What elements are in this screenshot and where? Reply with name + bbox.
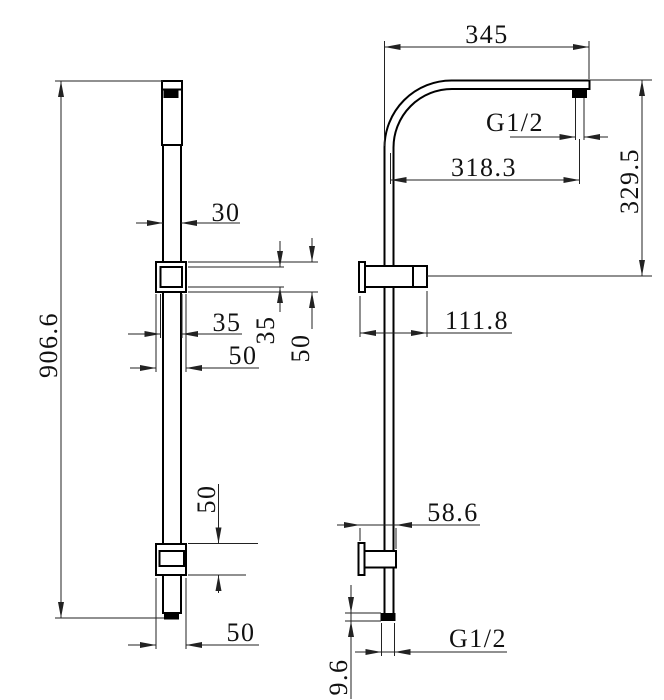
dim-label: 329.5 — [615, 148, 644, 214]
bracket-body — [365, 551, 397, 568]
dim-label: 345 — [465, 20, 509, 49]
dim-label: G1/2 — [486, 108, 544, 137]
dim-bottom-thread: G1/2 — [355, 623, 507, 656]
handle-seal-black — [164, 91, 179, 99]
dim-label: G1/2 — [449, 624, 507, 653]
dim-label: 111.8 — [445, 306, 509, 335]
lower-wall-bracket — [359, 543, 397, 575]
bracket-body — [365, 266, 427, 287]
dim-overall-height: 906.6 — [34, 81, 164, 618]
dim-label: 9.6 — [324, 659, 353, 696]
dim-inlet-cap-height: 9.6 — [324, 585, 381, 699]
dim-label: 906.6 — [34, 312, 63, 378]
rail-bottom-cap — [164, 613, 179, 620]
dim-horizontal-reach: 318.3 — [391, 139, 580, 184]
dim-label: 318.3 — [451, 153, 517, 182]
technical-drawing-canvas: 906.6 30 35 50 — [0, 0, 664, 700]
dim-upper-bracket-length: 111.8 — [360, 291, 512, 337]
dim-label: 50 — [192, 485, 221, 514]
right-view-shower-column: 345 G1/2 318.3 329.5 111.8 — [324, 20, 652, 699]
dim-label: 35 — [251, 316, 280, 345]
dim-label: 30 — [212, 198, 241, 227]
dim-label: 35 — [213, 308, 242, 337]
dim-lower-bracket-width: 50 — [128, 578, 259, 649]
upper-slider-inner — [161, 267, 183, 287]
arm-end-connector-black — [572, 90, 587, 99]
rail-tube — [163, 145, 181, 613]
dim-label: 50 — [286, 334, 315, 363]
lower-bracket-inner — [160, 551, 185, 566]
dim-label: 50 — [227, 618, 256, 647]
inlet-cap-black — [381, 613, 396, 621]
dim-top-thread: G1/2 — [486, 108, 608, 137]
dim-lower-bracket-height: 50 — [188, 484, 258, 593]
left-view-slide-rail: 906.6 30 35 50 — [34, 81, 318, 649]
dim-label: 58.6 — [427, 498, 479, 527]
dim-slider-inner-width: 35 — [128, 294, 242, 338]
dim-lower-bracket-length: 58.6 — [337, 498, 480, 549]
upper-wall-bracket — [359, 262, 427, 292]
dim-rail-width: 30 — [136, 198, 241, 227]
shower-rail-drawing: 906.6 30 35 50 — [0, 0, 664, 700]
